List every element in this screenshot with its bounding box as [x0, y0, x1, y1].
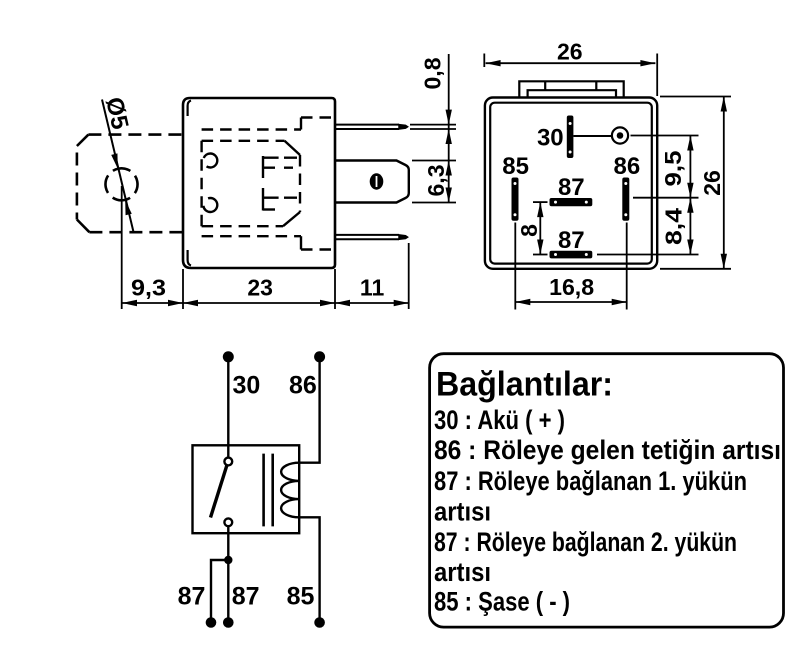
svg-text:30: 30	[233, 372, 261, 400]
svg-text:87: 87	[558, 174, 585, 201]
svg-text:86: 86	[289, 372, 317, 400]
svg-text:artısı: artısı	[434, 557, 491, 587]
svg-text:86 : Röleye gelen tetiğin artı: 86 : Röleye gelen tetiğin artısı	[434, 435, 781, 465]
svg-text:11: 11	[360, 275, 385, 301]
svg-text:8: 8	[516, 224, 542, 237]
svg-text:Bağlantılar:: Bağlantılar:	[436, 366, 613, 404]
svg-text:30 : Akü ( + ): 30 : Akü ( + )	[434, 405, 565, 435]
svg-text:9,5: 9,5	[660, 150, 686, 186]
svg-text:86: 86	[614, 153, 641, 180]
svg-text:85: 85	[287, 583, 315, 611]
svg-text:85: 85	[502, 153, 529, 180]
svg-text:87: 87	[558, 227, 585, 254]
svg-text:0,8: 0,8	[419, 57, 445, 89]
svg-text:9,3: 9,3	[131, 275, 166, 301]
svg-text:26: 26	[699, 170, 725, 196]
svg-text:87 : Röleye bağlanan 1. yükün: 87 : Röleye bağlanan 1. yükün	[434, 466, 747, 496]
svg-text:87: 87	[232, 583, 260, 611]
svg-text:87: 87	[178, 583, 206, 611]
svg-text:26: 26	[557, 39, 583, 65]
svg-text:85 : Şase ( - ): 85 : Şase ( - )	[434, 586, 570, 616]
svg-text:30: 30	[537, 124, 564, 151]
svg-text:8,4: 8,4	[660, 208, 686, 245]
svg-text:87 : Röleye bağlanan 2. yükün: 87 : Röleye bağlanan 2. yükün	[434, 527, 737, 557]
svg-text:16,8: 16,8	[549, 274, 594, 300]
svg-text:23: 23	[247, 275, 273, 301]
svg-text:artısı: artısı	[434, 496, 491, 526]
svg-text:6,3: 6,3	[423, 165, 449, 197]
